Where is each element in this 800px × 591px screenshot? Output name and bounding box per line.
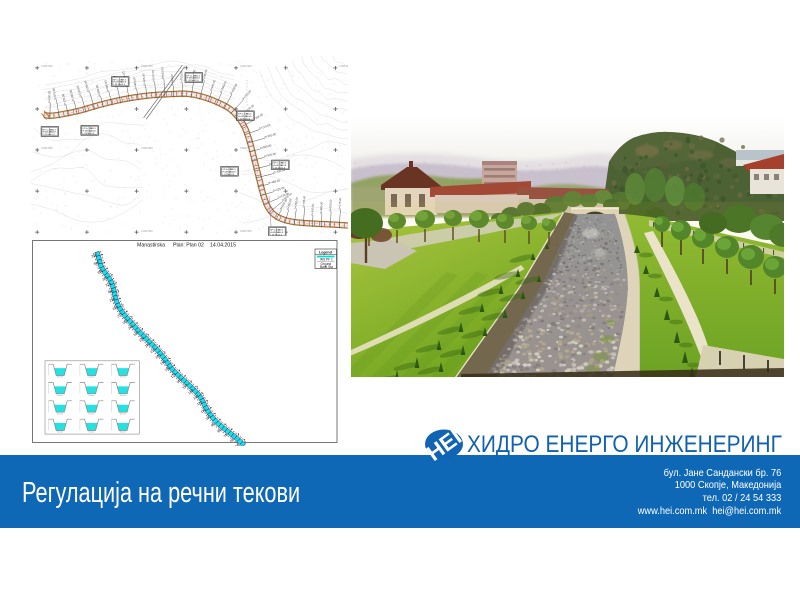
svg-text:Station: Station	[120, 394, 126, 397]
svg-text:0+210.00: 0+210.00	[75, 85, 82, 98]
svg-text:0+300.00: 0+300.00	[259, 143, 272, 150]
svg-text:0+345.00: 0+345.00	[264, 151, 277, 158]
svg-text:4 609 500: 4 609 500	[339, 64, 348, 68]
svg-text:0+525.00: 0+525.00	[273, 186, 286, 193]
svg-text:0+840.00: 0+840.00	[310, 203, 315, 215]
svg-text:0+615.00: 0+615.00	[160, 67, 165, 79]
svg-text:4 609 500: 4 609 500	[41, 64, 53, 68]
svg-text:0+030.00: 0+030.00	[47, 90, 51, 102]
svg-text:0+795.00: 0+795.00	[302, 195, 307, 207]
svg-text:0+480.00: 0+480.00	[132, 77, 138, 90]
svg-text:0+075.00: 0+075.00	[241, 89, 252, 101]
svg-text:0+525.00: 0+525.00	[141, 73, 146, 86]
svg-text:0+165.00: 0+165.00	[69, 89, 76, 102]
svg-text:0+210.00: 0+210.00	[259, 123, 272, 131]
svg-text:4 609 500: 4 609 500	[41, 146, 53, 150]
svg-text:4 609 500: 4 609 500	[240, 64, 252, 68]
svg-text:4 609 500: 4 609 500	[240, 229, 252, 233]
svg-text:0+885.00: 0+885.00	[319, 201, 324, 213]
svg-text:4 609 500: 4 609 500	[141, 229, 153, 233]
svg-text:Station: Station	[88, 376, 94, 379]
svg-text:Station: Station	[57, 394, 63, 397]
svg-text:0+885.00: 0+885.00	[219, 80, 228, 93]
svg-text:0+030.00: 0+030.00	[229, 83, 238, 96]
svg-text:4 609 500: 4 609 500	[141, 64, 153, 68]
svg-text:Station: Station	[120, 431, 126, 434]
svg-text:Station: Station	[120, 412, 126, 415]
svg-text:Plan: Plan 02: Plan: Plan 02	[173, 243, 204, 249]
svg-text:0+840.00: 0+840.00	[209, 79, 217, 92]
svg-text:Station: Station	[57, 412, 63, 415]
svg-text:0+750.00: 0+750.00	[293, 197, 299, 210]
svg-text:0+255.00: 0+255.00	[264, 132, 277, 139]
svg-text:0+300.00: 0+300.00	[95, 84, 102, 97]
svg-text:0+345.00: 0+345.00	[103, 80, 110, 93]
svg-text:0+120.00: 0+120.00	[61, 93, 67, 106]
svg-text:Station: Station	[88, 394, 94, 397]
svg-text:Station: Station	[57, 431, 63, 434]
svg-text:Manastirska: Manastirska	[137, 243, 165, 249]
svg-text:0+075.00: 0+075.00	[52, 87, 58, 100]
svg-text:4 609 500: 4 609 500	[141, 146, 153, 150]
svg-text:Station: Station	[88, 431, 94, 434]
svg-text:0+570.00: 0+570.00	[151, 70, 156, 82]
svg-text:0+480.00: 0+480.00	[268, 178, 281, 185]
svg-text:Station: Station	[120, 376, 126, 379]
svg-text:Station: Station	[57, 376, 63, 379]
svg-text:0+075.00: 0+075.00	[337, 197, 342, 209]
svg-text:Station: Station	[88, 412, 94, 415]
svg-text:14.04.2015: 14.04.2015	[210, 243, 236, 249]
svg-text:Bank Sta: Bank Sta	[320, 265, 333, 269]
svg-text:0+030.00: 0+030.00	[328, 199, 333, 211]
svg-text:Legend: Legend	[319, 250, 332, 254]
